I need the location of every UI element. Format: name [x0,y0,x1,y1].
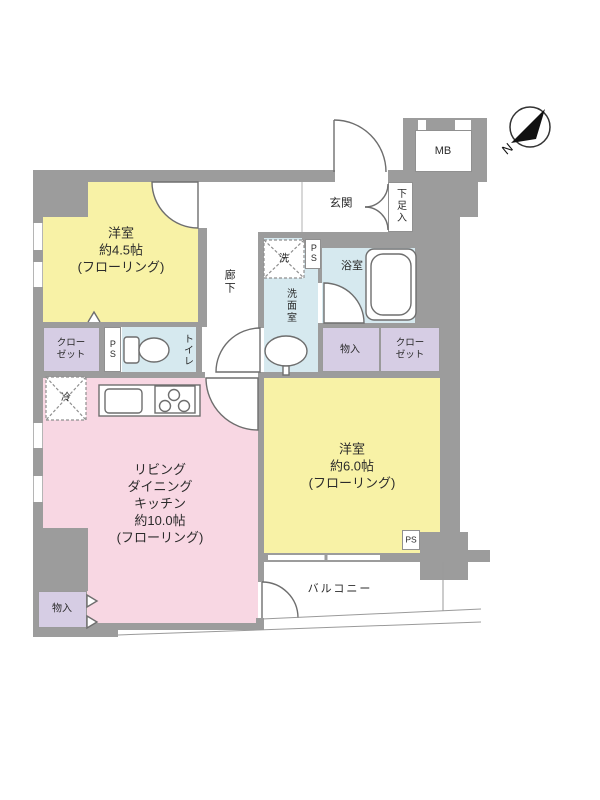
label-bathroom: 浴室 [341,259,363,273]
label-storage-middle: 物入 [340,344,360,357]
door-arc-washroom [216,328,260,372]
label-meter-box: MB [435,144,452,158]
wall-top [33,170,335,182]
wall-bedroom45-right [198,228,207,322]
label-bedroom-60: 洋室 約6.0帖 (フローリング) [309,442,396,493]
wall-washroom-top [258,232,322,238]
label-ldk: リビング ダイニング キッチン 約10.0帖 (フローリング) [117,462,204,546]
window [33,423,43,448]
compass-icon: N [499,107,550,157]
balcony-window [268,553,380,562]
window [33,262,43,287]
shoe-door-arc [365,207,388,230]
compass-north-label: N [499,140,516,158]
wall-band-bottom-left [43,372,205,378]
wall-band-bottom-right [258,372,440,378]
label-ps-washroom: PS [307,243,319,263]
wall-bottom [33,628,118,637]
label-ps-toilet: PS [106,339,118,359]
label-corridor: 廊下 [222,269,236,295]
floor-plan: N 洋室 約4.5帖 (フローリング) 洋室 約6.0帖 (フローリング) リビ… [0,0,600,800]
wall-washroom-left [258,238,264,328]
balcony-door-arc [262,582,298,618]
wall-ldk-balcony [258,553,264,582]
wall-pillar-arm [468,550,490,562]
label-entrance: 玄関 [330,197,353,212]
wall-ldk-bedroom60 [258,378,264,553]
compass-needle [511,109,545,143]
shoe-door-arc [365,184,388,207]
wall-genkan-bottom [302,232,460,248]
wall-right-block-c [415,248,460,325]
wall-right [440,325,460,532]
label-ps-balcony: PS [405,534,416,545]
label-washroom: 洗面室 [284,288,297,324]
wall-right-block-a [413,182,478,217]
window [33,476,43,502]
label-closet-right: クロー ゼット [396,338,425,363]
mb-notch [418,120,426,130]
label-toilet: トイレ [181,334,194,367]
label-balcony: バルコニー [308,582,373,596]
window [33,223,43,250]
entrance-door-arc [334,120,386,172]
label-bedroom-45: 洋室 約4.5帖 (フローリング) [78,226,165,277]
label-shoe-storage: 下足入 [394,188,407,224]
wall-toilet-right [196,327,202,372]
room-bathroom [322,248,415,323]
compass-circle [510,107,550,147]
mb-notch [455,120,471,130]
wall-bottom-left-block [33,528,88,591]
label-fridge: 冷 [61,392,71,405]
balcony-outer-line [262,609,481,619]
label-washer: 洗 [279,253,289,266]
label-storage-bottom: 物入 [52,603,72,616]
label-closet-left: クロー ゼット [57,338,86,363]
